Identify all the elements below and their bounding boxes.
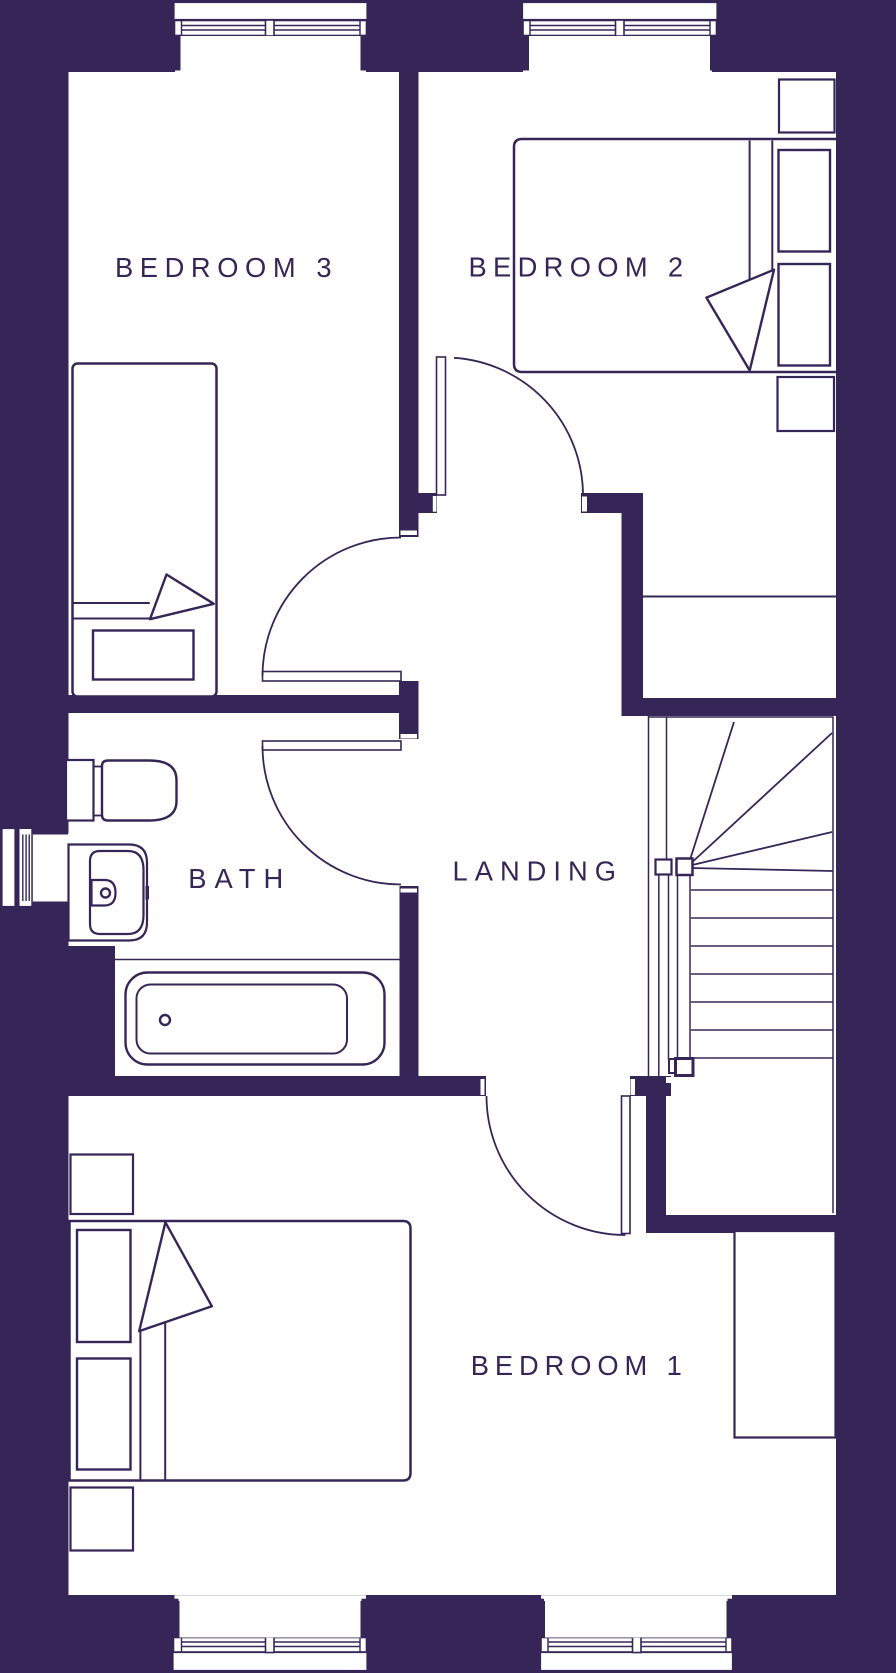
svg-text:LANDING: LANDING xyxy=(453,855,622,886)
svg-text:BEDROOM 1: BEDROOM 1 xyxy=(471,1350,688,1381)
svg-text:BATH: BATH xyxy=(188,863,289,894)
svg-text:BEDROOM 2: BEDROOM 2 xyxy=(469,252,689,283)
svg-text:BEDROOM 3: BEDROOM 3 xyxy=(115,252,337,283)
